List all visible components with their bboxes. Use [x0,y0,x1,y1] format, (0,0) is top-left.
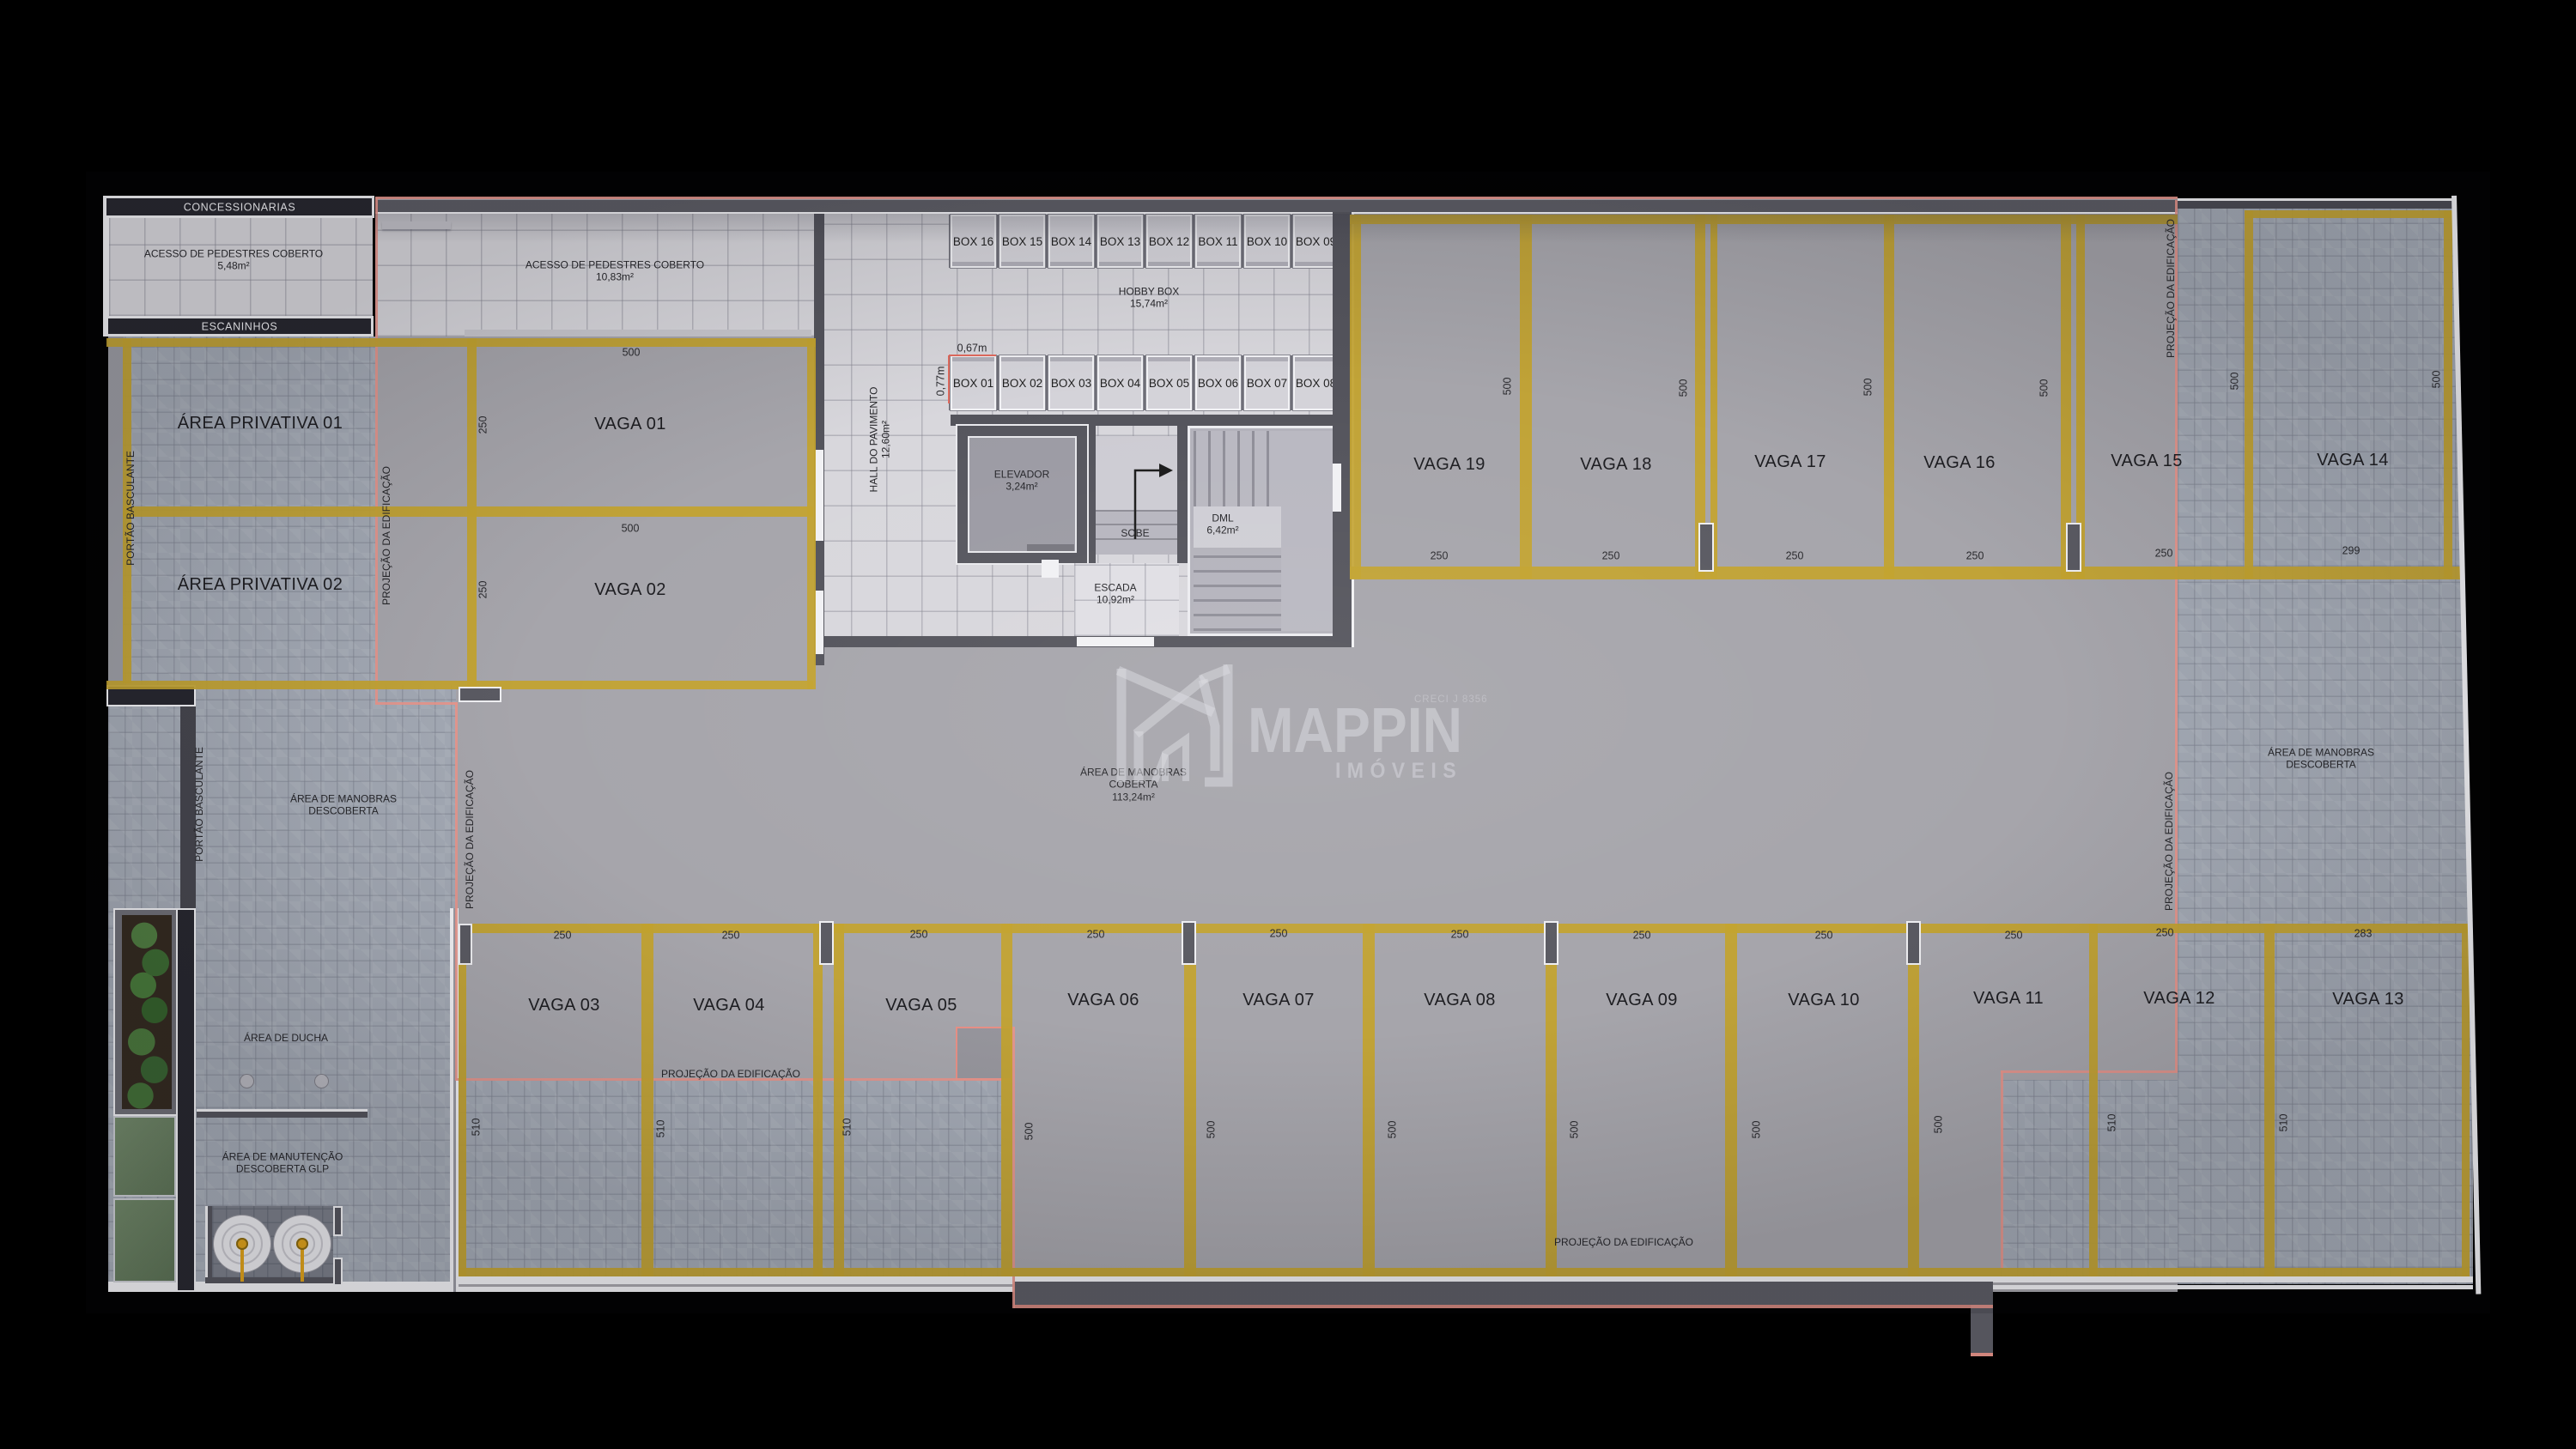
svg-text:IMÓVEIS: IMÓVEIS [1335,757,1462,783]
svg-text:CRECI J 8356: CRECI J 8356 [1414,694,1488,705]
svg-text:MAPPIN: MAPPIN [1248,694,1462,766]
